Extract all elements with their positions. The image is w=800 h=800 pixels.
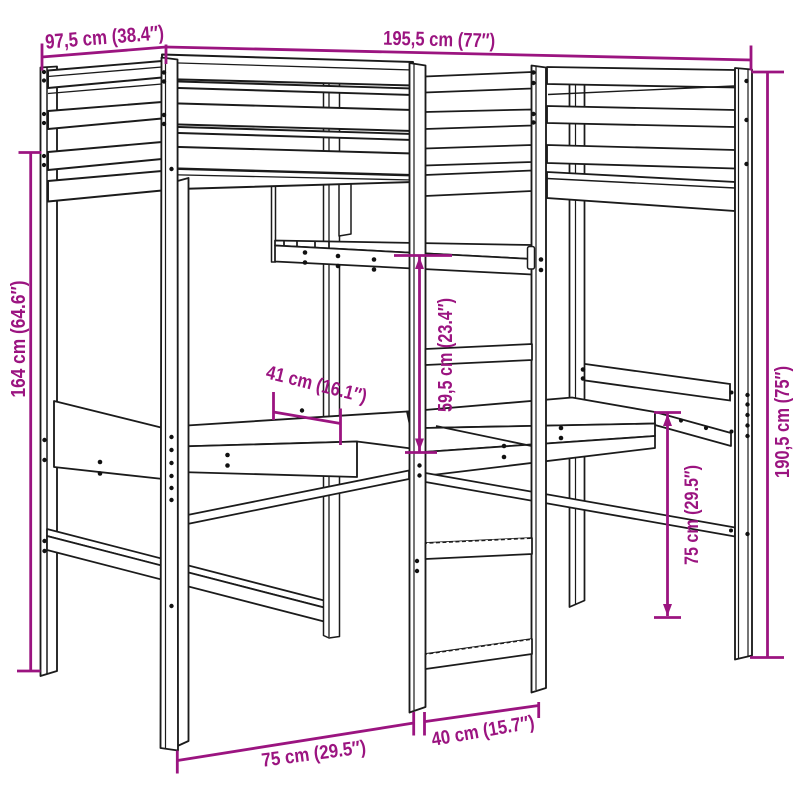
svg-text:195,5 cm (77″): 195,5 cm (77″): [383, 28, 496, 53]
svg-text:164 cm (64.6″): 164 cm (64.6″): [8, 281, 30, 398]
svg-text:75 cm (29.5″): 75 cm (29.5″): [681, 465, 703, 565]
svg-text:190,5 cm (75″): 190,5 cm (75″): [772, 366, 794, 478]
svg-text:59,5 cm (23.4″): 59,5 cm (23.4″): [435, 298, 457, 412]
